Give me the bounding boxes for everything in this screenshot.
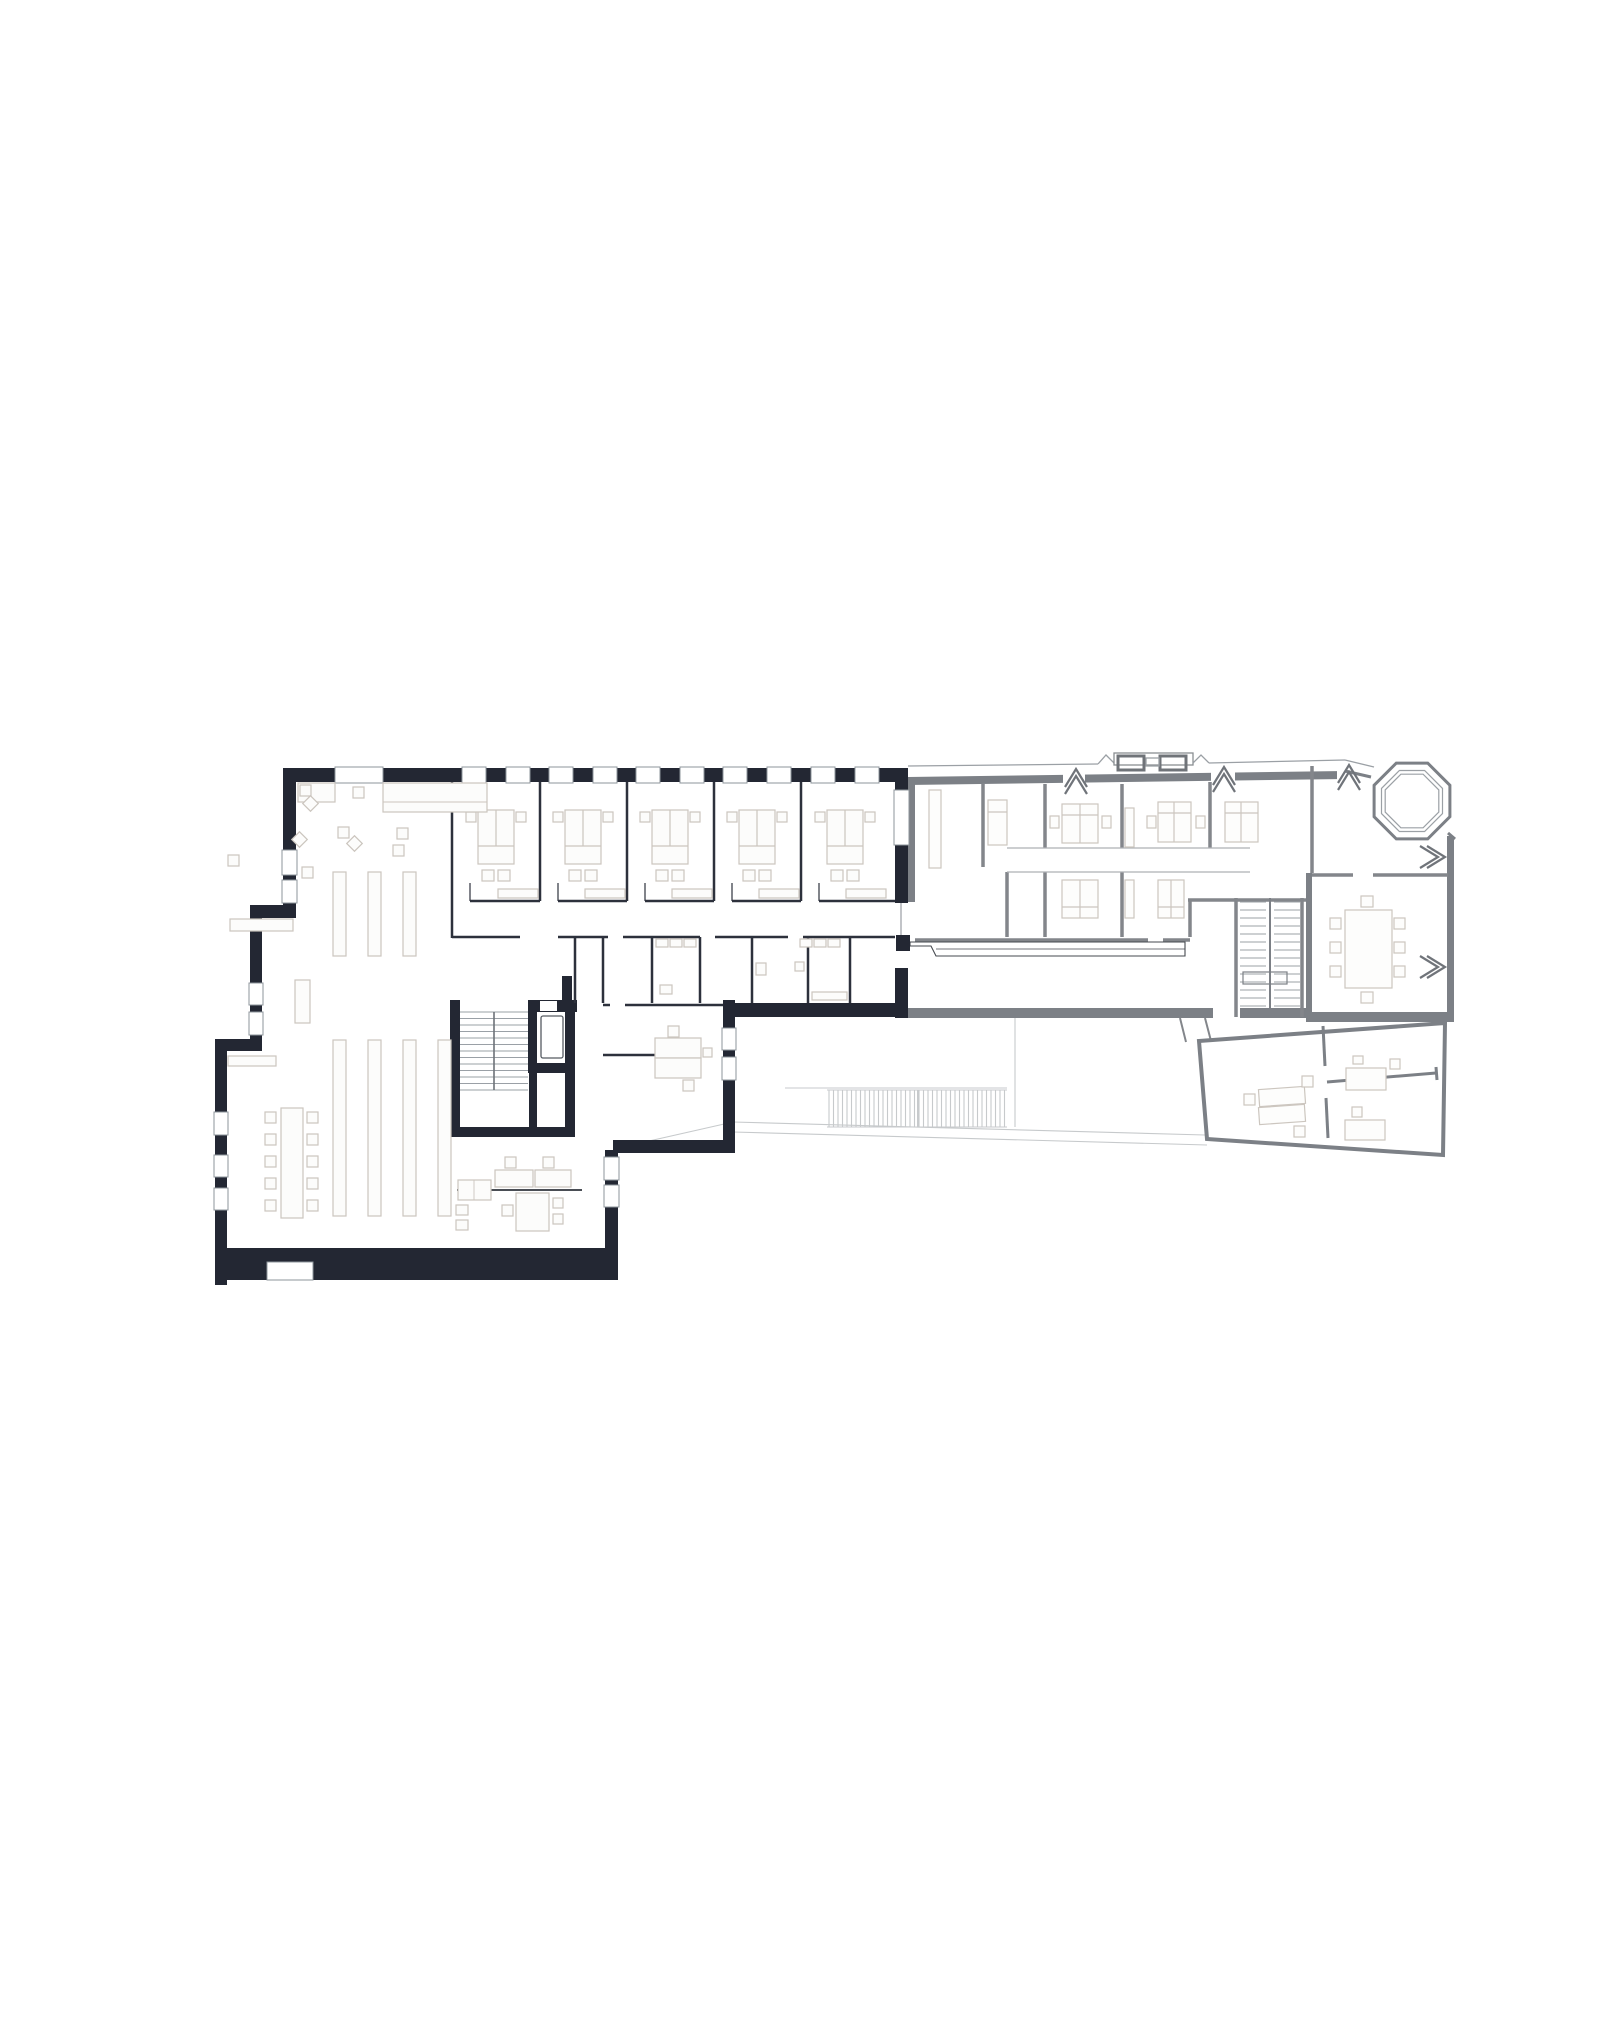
hall-furniture-7: [295, 980, 310, 1023]
bedroom-furniture-32: [759, 870, 771, 881]
service-furniture-17: [535, 1170, 571, 1187]
new-building-walls-20: [450, 1127, 575, 1137]
service-furniture-11: [655, 1058, 701, 1078]
bedroom-furniture-21: [603, 812, 613, 822]
service-furniture-4: [814, 939, 826, 947]
entrance-arrows-9: [1420, 956, 1438, 978]
window-openings-16: [214, 1155, 228, 1177]
service-furniture-10: [655, 1038, 701, 1058]
hall-furniture-18: [307, 1200, 318, 1211]
window-openings-19: [604, 1185, 619, 1207]
existing-staircase: [1240, 898, 1300, 1017]
bedroom-furniture-18: [727, 812, 737, 822]
existing-furniture-26: [1330, 942, 1341, 953]
new-building-walls-12: [895, 968, 908, 1018]
hall-furniture-30: [228, 855, 239, 866]
annex-shell-4: [1436, 1067, 1437, 1080]
annex-shell-1: [1323, 1026, 1325, 1066]
service-furniture-26: [456, 1205, 468, 1215]
new-building-walls-21: [562, 976, 572, 1002]
window-openings-2: [506, 767, 530, 783]
existing-partitions-19: [1205, 1018, 1211, 1041]
bedroom-furniture-31: [743, 870, 755, 881]
bedroom-furniture-36: [585, 889, 625, 898]
existing-furniture-29: [1394, 942, 1405, 953]
bedroom-furniture-24: [865, 812, 875, 822]
existing-furniture-25: [1330, 918, 1341, 929]
bedroom-furniture-30: [672, 870, 684, 881]
window-openings-0: [335, 767, 383, 783]
new-staircase: [460, 1012, 563, 1090]
existing-details-0: [908, 764, 1098, 766]
window-openings-22: [894, 790, 909, 845]
hall-furniture-16: [307, 1156, 318, 1167]
bedroom-furniture-33: [831, 870, 843, 881]
bedroom-furniture-38: [759, 889, 799, 898]
hall-furniture-20: [228, 1056, 276, 1066]
service-furniture-27: [456, 1220, 468, 1230]
existing-building-shell-2: [1447, 836, 1454, 1022]
bedroom-furniture-37: [672, 889, 712, 898]
window-openings-23: [267, 1262, 313, 1280]
annex-furniture-7: [1353, 1056, 1363, 1064]
bedroom-furniture-22: [690, 812, 700, 822]
service-furniture-0: [656, 939, 668, 947]
existing-furniture-24: [1345, 910, 1392, 988]
bedroom-furniture-15: [466, 812, 476, 822]
window-openings-3: [549, 767, 573, 783]
bedroom-furniture-20: [516, 812, 526, 822]
service-furniture-20: [516, 1193, 549, 1231]
service-furniture-22: [553, 1214, 563, 1224]
hall-furniture-19: [230, 919, 293, 931]
service-furniture-16: [495, 1170, 533, 1187]
window-openings-20: [722, 1028, 736, 1050]
page-canvas: [0, 0, 1600, 2021]
terrace-lines: [618, 1018, 1207, 1148]
hall-furniture-24: [300, 785, 311, 796]
window-openings-4: [593, 767, 617, 783]
hall-furniture-22: [383, 783, 487, 812]
window-openings-12: [282, 880, 297, 903]
existing-building-shell-4: [1240, 1008, 1306, 1018]
annex-furniture-9: [1352, 1107, 1362, 1117]
hall-furniture-9: [265, 1112, 276, 1123]
hall-furniture-4: [368, 1040, 381, 1216]
existing-furniture-14: [1147, 816, 1156, 828]
hall-furniture-14: [307, 1112, 318, 1123]
hall-furniture-25: [353, 787, 364, 798]
hall-furniture-10: [265, 1134, 276, 1145]
existing-furniture-17: [1125, 880, 1134, 918]
bedroom-furniture: [466, 810, 886, 898]
window-openings-15: [214, 1112, 228, 1135]
annex-furniture-8: [1345, 1120, 1385, 1140]
hall-furniture-15: [307, 1134, 318, 1145]
service-furniture-13: [683, 1080, 694, 1091]
service-furniture-19: [543, 1157, 554, 1168]
existing-details-7: [1209, 760, 1345, 763]
existing-furniture-30: [1394, 966, 1405, 977]
bedroom-furniture-29: [656, 870, 668, 881]
existing-partitions-18: [1180, 1018, 1186, 1042]
annex-furniture-4: [1244, 1094, 1255, 1105]
bedroom-furniture-39: [846, 889, 886, 898]
existing-furniture-16: [1125, 808, 1134, 847]
existing-furniture-15: [1196, 816, 1205, 828]
service-furniture-18: [505, 1157, 516, 1168]
hall-furniture-6: [438, 1040, 451, 1216]
window-openings-14: [249, 1012, 263, 1035]
service-furniture-7: [756, 963, 766, 975]
bedroom-furniture-26: [498, 870, 510, 881]
service-furniture-14: [703, 1048, 712, 1057]
bedroom-furniture-28: [585, 870, 597, 881]
window-openings-11: [282, 850, 297, 875]
new-building-walls-8: [613, 1140, 733, 1153]
window-openings-6: [680, 767, 704, 783]
window-openings-18: [604, 1157, 619, 1180]
annex-furniture-6: [1390, 1059, 1400, 1069]
hall-furniture-0: [333, 872, 346, 956]
existing-furniture: [929, 790, 1405, 1003]
entrance-arrows-7: [1420, 846, 1438, 868]
new-building-walls-10: [723, 1003, 908, 1017]
window-openings-21: [722, 1057, 736, 1080]
window-openings-24: [540, 1001, 557, 1011]
terrace-lines-7: [733, 1132, 1207, 1145]
hall-furniture-28: [393, 845, 404, 856]
hall-furniture-13: [265, 1200, 276, 1211]
annex-furniture-2: [1302, 1076, 1313, 1087]
service-furniture-2: [684, 939, 696, 947]
hall-furniture-11: [265, 1156, 276, 1167]
service-furniture-3: [800, 939, 812, 947]
existing-furniture-31: [1361, 896, 1373, 907]
new-staircase-2: [541, 1016, 563, 1058]
service-furniture-21: [553, 1198, 563, 1208]
hall-furniture-3: [333, 1040, 346, 1216]
annex-furniture-1: [1258, 1104, 1305, 1124]
new-building-walls-13: [896, 935, 910, 951]
bedroom-furniture-27: [569, 870, 581, 881]
existing-furniture-13: [1102, 816, 1111, 828]
window-openings-10: [855, 767, 879, 783]
annex-shell-0: [1199, 1023, 1445, 1155]
existing-furniture-0: [929, 790, 941, 868]
hall-furniture-26: [338, 827, 349, 838]
existing-furniture-28: [1394, 918, 1405, 929]
floor-plan-drawing: [0, 0, 1600, 2021]
window-openings-17: [214, 1188, 228, 1210]
service-furniture-9: [812, 992, 847, 1000]
hall-furniture-1: [368, 872, 381, 956]
hall-furniture-17: [307, 1178, 318, 1189]
new-building-walls-18: [565, 1000, 575, 1137]
hall-furniture: [228, 783, 487, 1218]
existing-furniture-12: [1050, 816, 1059, 828]
existing-furniture-1: [988, 800, 1007, 845]
existing-furniture-27: [1330, 966, 1341, 977]
service-furniture-12: [668, 1026, 679, 1037]
annex-furniture-3: [1294, 1126, 1305, 1137]
existing-building-shell-6: [1306, 873, 1312, 1022]
bedroom-furniture-35: [498, 889, 538, 898]
service-furniture-23: [502, 1205, 513, 1216]
window-openings-9: [811, 767, 835, 783]
hall-furniture-2: [403, 872, 416, 956]
existing-building-shell-0: [908, 771, 1345, 785]
window-openings-13: [249, 983, 263, 1005]
hall-furniture-8: [281, 1108, 303, 1218]
bedroom-furniture-25: [482, 870, 494, 881]
window-openings-1: [462, 767, 486, 783]
hall-furniture-29: [302, 867, 313, 878]
bedroom-furniture-19: [815, 812, 825, 822]
window-openings-8: [767, 767, 791, 783]
window-openings-5: [636, 767, 660, 783]
hall-furniture-12: [265, 1178, 276, 1189]
existing-building-shell-5: [1306, 1012, 1454, 1022]
annex-shell-2: [1326, 1098, 1328, 1138]
bedroom-furniture-23: [777, 812, 787, 822]
hall-furniture-27: [397, 828, 408, 839]
existing-details-1: [1098, 755, 1114, 764]
service-furniture-5: [828, 939, 840, 947]
bedroom-furniture-34: [847, 870, 859, 881]
hall-furniture-5: [403, 1040, 416, 1216]
existing-building-shell-3: [908, 1008, 1213, 1018]
service-furniture-8: [795, 962, 804, 971]
annex-shell: [1199, 1023, 1445, 1155]
bedroom-furniture-17: [640, 812, 650, 822]
existing-furniture-32: [1361, 992, 1373, 1003]
service-furniture-1: [670, 939, 682, 947]
existing-details-6: [1193, 755, 1209, 763]
window-openings-7: [723, 767, 747, 783]
service-furniture-24: [458, 1180, 491, 1200]
service-furniture-6: [660, 985, 672, 994]
annex-furniture-5: [1346, 1068, 1386, 1090]
annex-furniture-0: [1258, 1086, 1305, 1106]
bedroom-furniture-16: [553, 812, 563, 822]
